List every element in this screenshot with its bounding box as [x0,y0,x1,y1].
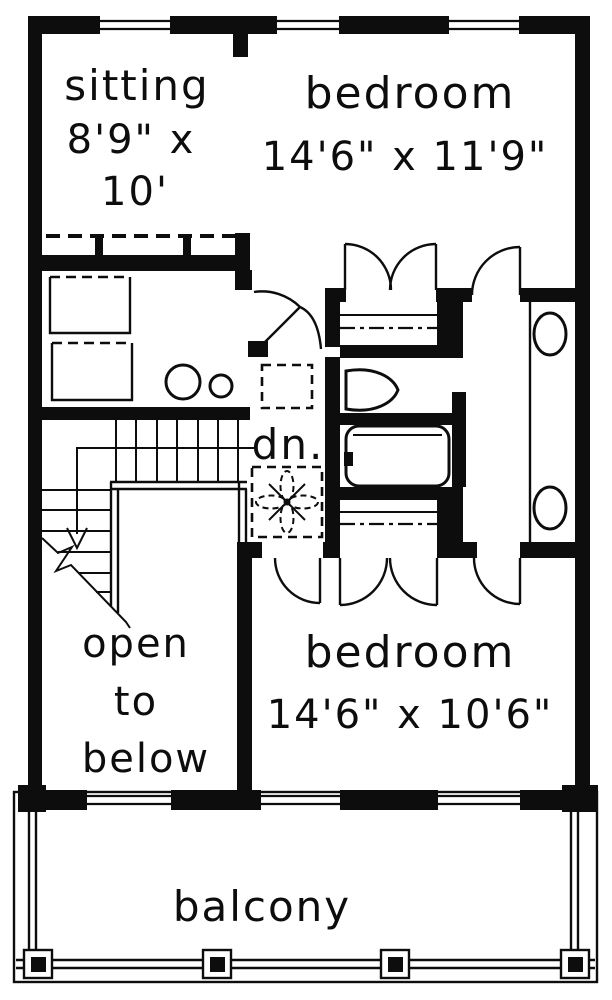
window-top-3 [449,16,519,34]
wall-sitting-south [28,255,250,271]
wall-bath-north-a [325,288,346,302]
open-below-word-1: open [82,621,190,667]
floor-plan-page: sitting 8'9" x 10' bedroom 14'6" x 11'9"… [0,0,612,1000]
bathtub [344,426,449,486]
corner-block-sw [18,785,46,812]
balcony-label: balcony [173,882,351,931]
balcony-post-3 [381,950,409,978]
staircase [42,420,254,628]
bedroom-top-label: bedroom [305,68,516,119]
door-hall-to-bedroom [275,558,320,603]
wall-utility-south [28,407,250,420]
balcony-post-1 [24,950,52,978]
wall-hall-lower [325,357,340,558]
sink-1 [534,313,566,355]
toilet [346,370,398,410]
wall-bed2-north-d [520,542,590,558]
floor-plan-drawing: sitting 8'9" x 10' bedroom 14'6" x 11'9"… [0,0,612,1000]
stairs-upper-flight [116,420,238,481]
stool-small [210,375,232,397]
stool-large [166,365,200,399]
ceiling-fan [252,467,322,537]
door-vanity-bottom [474,558,520,604]
wall-closet2-east [437,492,463,542]
down-arrow-leader [67,448,254,548]
wall-chamfer-upper-stub [235,270,252,290]
bedroom-bottom-label: bedroom [305,627,516,678]
balcony-post-2 [203,950,231,978]
kneewall-stub-1 [95,236,103,256]
wall-tub-alcove [340,413,456,425]
sitting-room-label: sitting [64,61,209,110]
kneewall-stub-2 [183,236,191,256]
window-top-1 [100,16,170,34]
utility-room-fixtures [50,277,232,400]
door-bottom-closet-left [340,558,387,605]
door-utility-room [254,291,321,349]
wall-bed2-north-c [437,542,477,558]
balcony-post-4 [561,950,589,978]
bedroom-top-dims: 14'6" x 11'9" [262,134,549,180]
open-below-word-3: below [82,736,210,782]
corner-block-se [562,785,598,812]
closet-rod-top [340,315,437,328]
wall-bed2-west [237,542,252,792]
wall-exterior-right [575,16,590,810]
door-bottom-closet-right [390,558,437,605]
sink-2 [534,487,566,529]
cabinet-1 [50,277,130,333]
wall-bath-north-b [436,288,472,302]
wall-chamfer-lower-stub [248,341,268,357]
stairs-down-label: dn. [252,420,325,469]
closet-rod-bottom [340,512,437,524]
sitting-room-dim-2: 10' [101,169,169,215]
sitting-room-dim-1: 8'9" x [67,117,196,163]
wall-bath-north-c [520,288,590,302]
cabinet-2 [52,343,132,400]
door-top-closet-left [345,244,391,290]
door-vanity-top [472,247,520,295]
window-top-2 [277,16,339,34]
wall-sitting-divider-stub [233,16,248,57]
open-to-below-railing [110,482,247,613]
chase-dashed-box [262,365,312,408]
tub-faucet [344,452,353,466]
wall-bed2-north-b [323,542,340,558]
door-top-closet-right [390,244,436,290]
open-below-word-2: to [114,679,158,725]
bedroom-bottom-dims: 14'6" x 10'6" [267,692,554,738]
wall-tub-east [452,392,466,487]
